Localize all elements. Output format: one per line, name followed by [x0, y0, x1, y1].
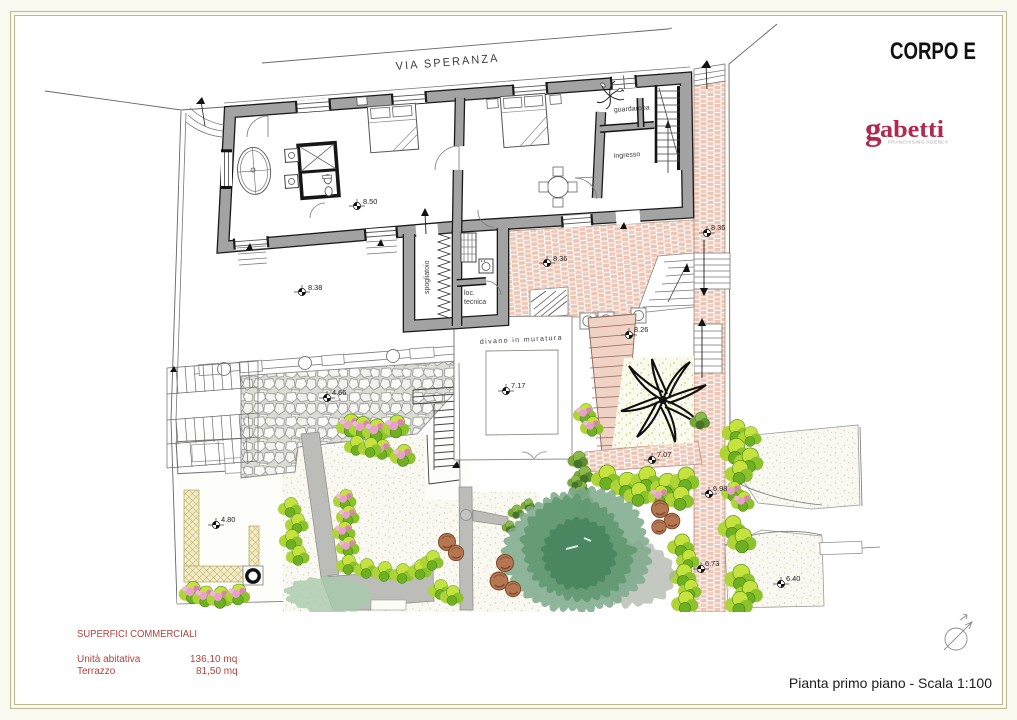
svg-text:SUPERFICI COMMERCIALI: SUPERFICI COMMERCIALI: [77, 629, 197, 640]
svg-text:8.50: 8.50: [363, 197, 377, 206]
svg-text:8.38: 8.38: [308, 283, 322, 292]
svg-text:abetti: abetti: [880, 117, 944, 143]
svg-text:4.80: 4.80: [221, 515, 235, 524]
svg-text:spogliatoio: spogliatoio: [424, 260, 431, 294]
svg-text:7.07: 7.07: [657, 450, 671, 459]
svg-text:FRANCHISING AGENCY: FRANCHISING AGENCY: [888, 140, 949, 146]
svg-text:81,50 mq: 81,50 mq: [196, 666, 238, 677]
svg-text:Unità abitativa: Unità abitativa: [77, 654, 141, 665]
svg-text:4.66: 4.66: [332, 388, 346, 397]
svg-text:6.98: 6.98: [713, 484, 727, 493]
svg-text:136,10 mq: 136,10 mq: [190, 654, 237, 665]
svg-text:6.40: 6.40: [786, 574, 800, 583]
svg-text:8.36: 8.36: [553, 254, 567, 263]
svg-text:Pianta primo piano - Scala 1:1: Pianta primo piano - Scala 1:100: [789, 675, 992, 691]
svg-text:Terrazzo: Terrazzo: [77, 666, 116, 677]
svg-text:CORPO E: CORPO E: [890, 38, 976, 65]
svg-text:loc.: loc.: [464, 290, 475, 297]
svg-text:8.26: 8.26: [634, 325, 648, 334]
svg-text:tecnica: tecnica: [464, 299, 486, 306]
svg-text:6.73: 6.73: [705, 559, 719, 568]
svg-text:7.17: 7.17: [511, 381, 525, 390]
svg-text:8.36: 8.36: [711, 223, 725, 232]
